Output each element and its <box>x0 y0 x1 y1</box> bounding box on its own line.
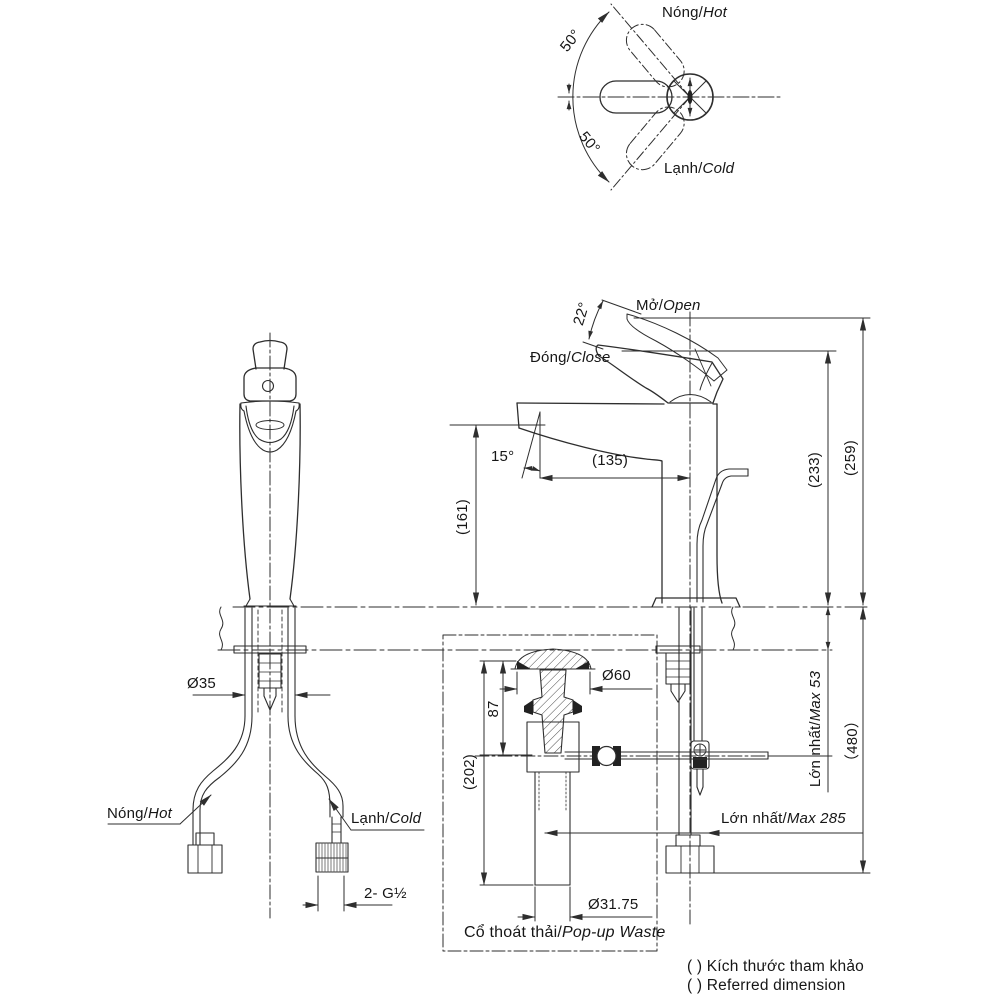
top-view-cold-label: Lạnh/Cold <box>664 161 734 177</box>
dim-87-label: 87 <box>486 700 502 717</box>
dimension-lines <box>108 300 870 921</box>
popup-rod-clevis <box>691 741 709 795</box>
max-reach-label: Lớn nhất/Max 285 <box>721 811 846 827</box>
close-label: Đóng/Close <box>530 350 610 366</box>
front-view-faucet <box>240 333 300 918</box>
cold-hose-nut <box>316 843 348 872</box>
dim-480-label: （480） <box>845 713 861 769</box>
mounting-nut-side <box>666 653 690 684</box>
dim-259-label: (259) <box>843 440 859 476</box>
lift-rod <box>697 469 748 602</box>
dim-202-label: (202) <box>462 754 478 790</box>
top-view-hot-label: Nóng/Hot <box>662 5 727 21</box>
cold-hose-label: Lạnh/Cold <box>351 811 421 827</box>
popup-cap <box>511 649 595 669</box>
dim-o60-label: Ø60 <box>602 668 631 684</box>
hot-hose <box>200 716 252 845</box>
dim-233-label: (233) <box>807 452 823 488</box>
handle-open <box>627 314 727 381</box>
faucet-technical-drawing: Nóng/Hot Lạnh/Cold 50° 50° Mở/Open Đóng/… <box>0 0 1000 1000</box>
legend-en: ( ) Referred dimension <box>687 978 846 994</box>
open-label: Mở/Open <box>636 298 701 314</box>
angle-15-label: 15° <box>491 449 514 465</box>
popup-plug <box>533 670 573 753</box>
dim-o3175-label: Ø31.75 <box>588 897 638 913</box>
dim-hole-label: Ø35 <box>187 676 216 692</box>
cold-hose <box>288 716 330 817</box>
hot-label-vi: Nóng/ <box>662 4 703 21</box>
dim-135-label: (135) <box>592 453 628 469</box>
thread-label: 2- G½ <box>364 886 407 902</box>
dim-161-label: (161) <box>455 499 471 535</box>
handle-closed <box>596 345 723 403</box>
front-view-supply-hoses <box>188 608 348 873</box>
popup-rod-ball-joint <box>592 746 621 766</box>
break-line-left <box>220 607 223 650</box>
counter-section <box>218 607 868 650</box>
max-deck-label: Lớn nhất/Max 53 <box>808 671 824 787</box>
break-line-right <box>732 607 735 650</box>
hot-hose-nut <box>188 845 222 873</box>
popup-waste-title: Cổ thoát thải/Pop-up Waste <box>464 925 665 942</box>
hot-hose-label: Nóng/Hot <box>107 806 172 822</box>
legend-vi: ( ) Kích thước tham khảo <box>687 959 864 975</box>
drawing-linework <box>0 0 1000 1000</box>
hot-label-en: Hot <box>703 4 727 21</box>
